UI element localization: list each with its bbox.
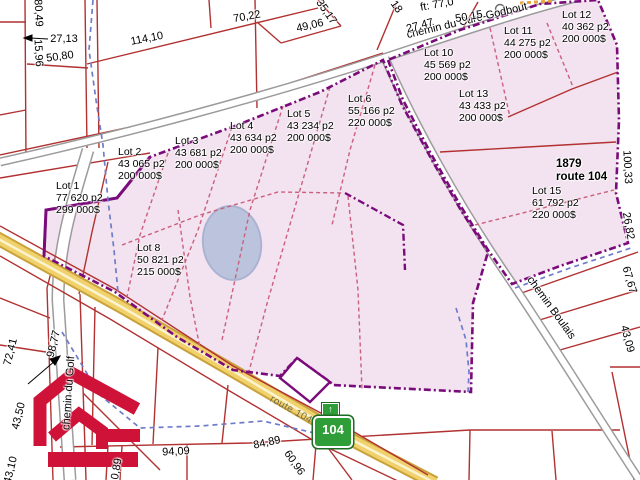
measure-80-49: 80,49 [31,0,45,27]
route-shield-arrow-icon: ↑ [322,403,339,417]
address-1879-route-104: 1879 route 104 [556,158,612,184]
lot-5-label: Lot 5 43 234 p2 200 000$ [287,109,334,145]
measure-15-96: 15,96 [31,39,45,67]
lot-4-label: Lot 4 43 634 p2 200 000$ [230,121,277,157]
route-104-shield: 104 [313,416,353,448]
map-canvas [0,0,640,480]
lot-15-label: Lot 15 61 792 p2 220 000$ [532,186,579,222]
lot-11-label: Lot 11 44 275 p2 200 000$ [504,26,551,62]
lot-13-label: Lot 13 43 433 p2 200 000$ [459,89,506,125]
measure-100-33: 100,33 [620,150,634,184]
lot-1-label: Lot 1 77 620 p2 299 000$ [56,181,103,217]
lot-2-label: Lot 2 43 065 p2 200 000$ [118,147,165,183]
lot-12-label: Lot 12 40 362 p2 200 000$ [562,10,609,46]
cadastral-map: ↑ 104 Lot 1 77 620 p2 299 000$Lot 2 43 0… [0,0,640,480]
lot-6-label: Lot 6 55 166 p2 220 000$ [348,94,395,130]
lot-3-label: Lot 3 43 681 p2 200 000$ [175,136,222,172]
measure-27-13: 27,13 [50,33,78,45]
lot-8-label: Lot 8 50 821 p2 215 000$ [137,243,184,279]
lot-10-label: Lot 10 45 569 p2 200 000$ [424,48,471,84]
measure-94-09: 94,09 [162,445,190,459]
